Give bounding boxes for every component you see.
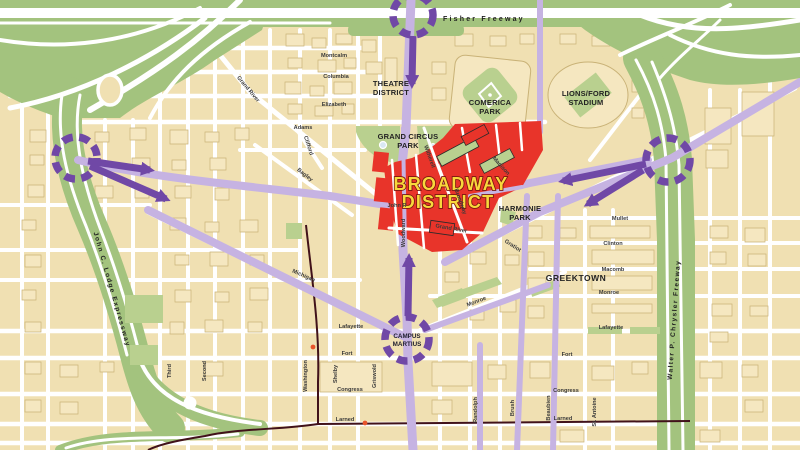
street-label-shelby: Shelby	[333, 364, 339, 383]
street-label-randolph: Randolph	[473, 397, 479, 423]
street-label-beaubien: Beaubien	[546, 395, 552, 421]
street-label-lafayette-e: Lafayette	[599, 325, 624, 331]
street-label-montcalm: Montcalm	[321, 53, 347, 59]
street-label-columbia: Columbia	[323, 74, 349, 80]
street-label-washington: Washington	[303, 360, 309, 392]
traffic-circle	[184, 397, 197, 410]
street-label-clinton: Clinton	[603, 241, 623, 247]
broadway-district-title: BROADWAY	[394, 174, 509, 194]
street-label-lafayette-w: Lafayette	[339, 324, 364, 330]
svg-text:PARK: PARK	[397, 141, 419, 150]
people-mover-station	[311, 345, 316, 350]
lions-ford-stadium-label: LIONS/FORD	[562, 89, 611, 98]
street-label-elizabeth: Elizabeth	[322, 102, 347, 108]
street-label-griswold: Griswold	[372, 363, 378, 388]
street-label-larned-w: Larned	[336, 417, 355, 423]
street-label-fort-e: Fort	[562, 352, 573, 358]
grand-circus-park-label: GRAND CIRCUS	[378, 132, 439, 141]
street-label-mullet: Mullet	[612, 216, 628, 222]
svg-text:DISTRICT: DISTRICT	[373, 88, 409, 97]
street-label-third: Third	[167, 363, 173, 378]
fisher-freeway-label: Fisher Freeway	[443, 16, 525, 23]
comerica-park-label: COMERICA	[469, 98, 512, 107]
campus-martius-label: CAMPUS	[393, 333, 420, 340]
arrow-from-south	[408, 258, 409, 316]
street-label-woodward: Woodward	[401, 218, 407, 247]
street-label-congress-w: Congress	[337, 387, 363, 393]
street-label-congress-e: Congress	[553, 388, 579, 394]
wayfinding-map: Fisher Freeway John C. Lodge Expressway …	[0, 0, 800, 450]
street-label-larned-e: Larned	[554, 416, 573, 422]
theatre-district-label: THEATRE	[373, 79, 409, 88]
street-label-brush: Brush	[510, 399, 516, 416]
greektown-label: GREEKTOWN	[546, 273, 607, 283]
harmonie-park-label: HARMONIE	[499, 204, 541, 213]
street-label-adams: Adams	[294, 125, 313, 131]
street-label-fort-w: Fort	[342, 351, 353, 357]
svg-text:PARK: PARK	[479, 107, 501, 116]
street-label-st-antoine: St. Antoine	[592, 397, 598, 426]
street-label-second: Second	[202, 360, 208, 381]
svg-text:PARK: PARK	[509, 213, 531, 222]
arrow-from-north	[412, 36, 413, 84]
street-label-monroe-e: Monroe	[599, 290, 619, 296]
street-label-john-r: John R	[388, 203, 407, 209]
street-label-macomb: Macomb	[602, 267, 625, 273]
people-mover-station	[363, 421, 368, 426]
svg-text:STADIUM: STADIUM	[568, 98, 603, 107]
svg-text:DISTRICT: DISTRICT	[402, 192, 495, 212]
map-canvas: Fisher Freeway John C. Lodge Expressway …	[0, 0, 800, 450]
svg-text:MARTIUS: MARTIUS	[393, 341, 422, 348]
